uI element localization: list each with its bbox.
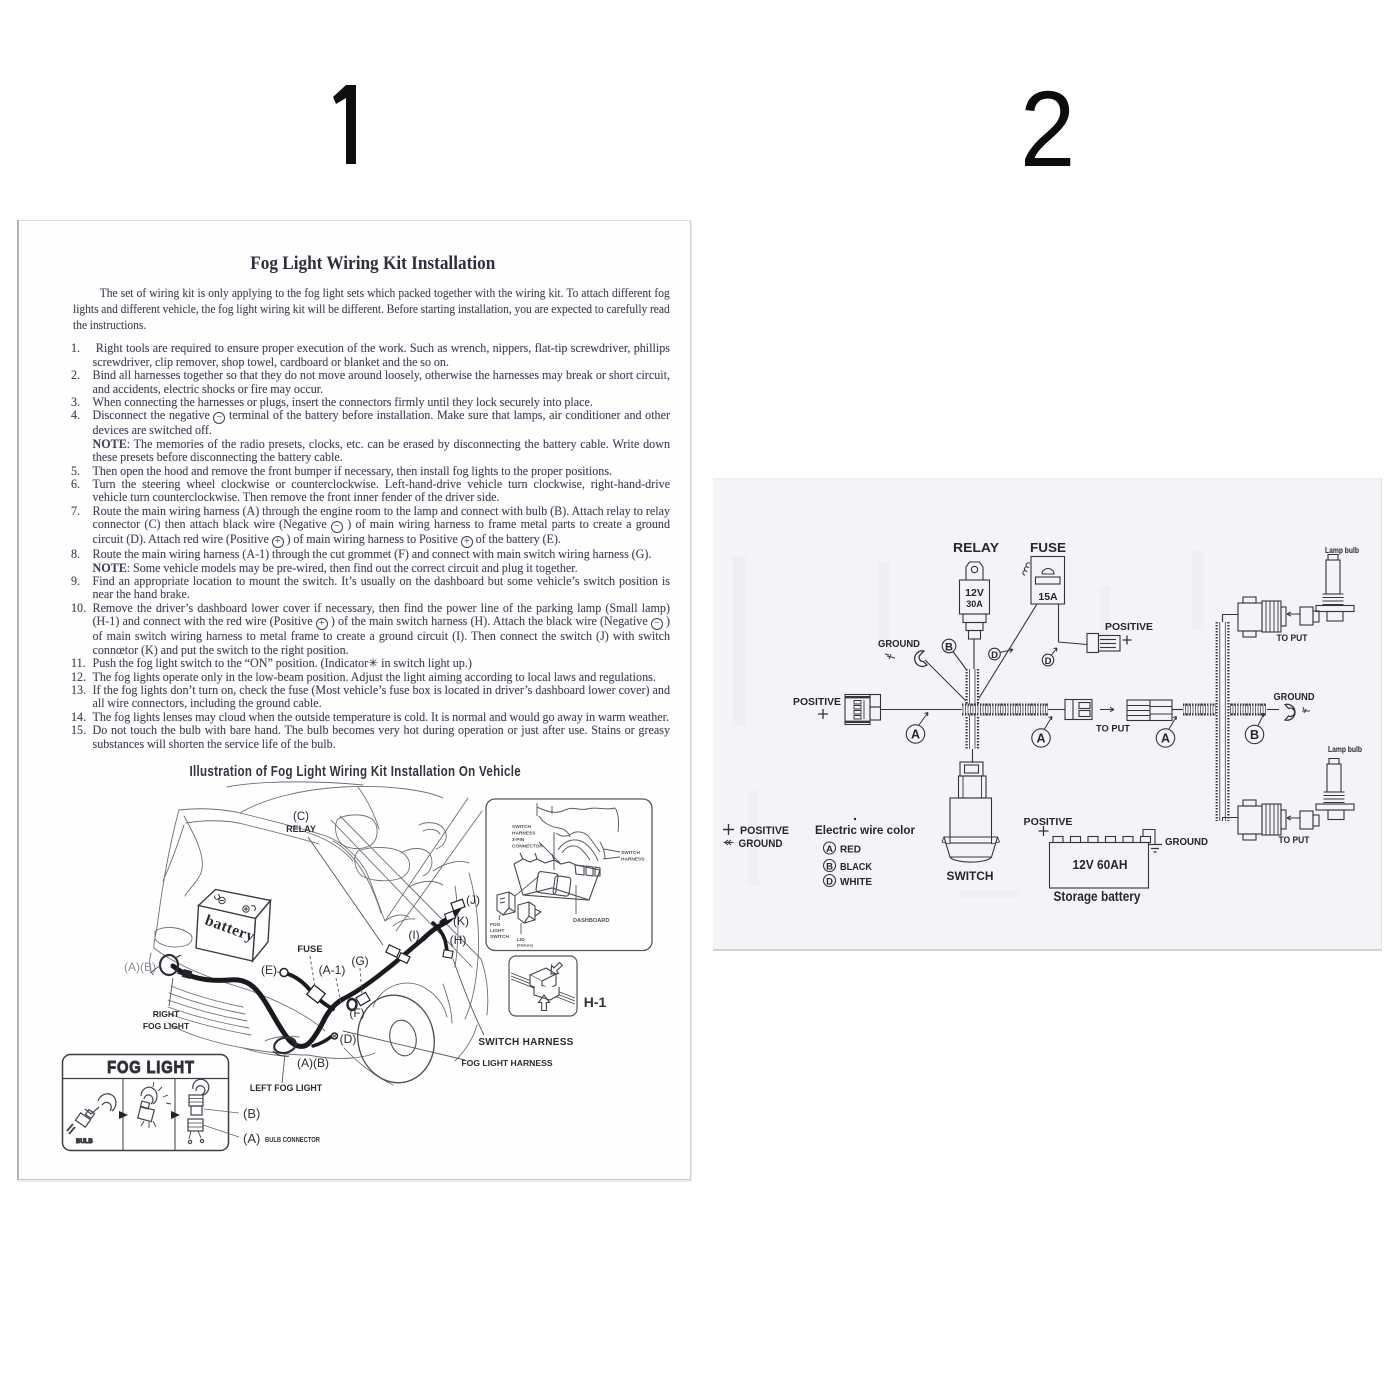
svg-text:POSITIVE: POSITIVE <box>1024 816 1073 828</box>
svg-text:SWITCH: SWITCH <box>512 824 531 830</box>
svg-text:B: B <box>945 642 953 654</box>
svg-text:(A-1): (A-1) <box>319 963 346 977</box>
svg-text:HARNESS: HARNESS <box>512 831 536 837</box>
svg-text:FOG LIGHT HARNESS: FOG LIGHT HARNESS <box>461 1058 552 1068</box>
svg-text:D: D <box>991 650 998 661</box>
svg-text:POSITIVE: POSITIVE <box>1105 621 1153 633</box>
svg-text:(J): (J) <box>466 893 480 907</box>
svg-text:SWITCH HARNESS: SWITCH HARNESS <box>478 1037 573 1048</box>
svg-text:(D): (D) <box>340 1032 357 1046</box>
svg-text:POSITIVE: POSITIVE <box>793 696 841 708</box>
svg-text:A: A <box>826 844 833 855</box>
svg-text:(Fixture): (Fixture) <box>517 943 534 948</box>
svg-text:FOG: FOG <box>490 922 501 928</box>
svg-text:RELAY: RELAY <box>286 824 316 834</box>
svg-text:(A): (A) <box>243 1131 260 1146</box>
svg-text:POSITIVE: POSITIVE <box>740 825 789 837</box>
svg-text:HARNESS: HARNESS <box>621 857 645 863</box>
svg-text:GROUND: GROUND <box>1274 691 1315 703</box>
svg-text:FOG LIGHT: FOG LIGHT <box>143 1021 190 1031</box>
svg-text:RELAY: RELAY <box>953 541 1000 555</box>
svg-text:(A)(B): (A)(B) <box>297 1056 329 1070</box>
svg-text:D: D <box>826 877 833 888</box>
svg-text:12V: 12V <box>965 587 984 599</box>
svg-text:BULB CONNECTOR: BULB CONNECTOR <box>265 1137 320 1144</box>
svg-text:SWITCH: SWITCH <box>621 850 640 856</box>
svg-text:BULB: BULB <box>76 1139 93 1145</box>
svg-text:(G): (G) <box>351 954 368 968</box>
svg-text:TO PUT: TO PUT <box>1277 633 1308 644</box>
svg-text:LEFT FOG LIGHT: LEFT FOG LIGHT <box>250 1083 323 1093</box>
svg-text:GROUND: GROUND <box>878 638 920 650</box>
svg-text:(E): (E) <box>261 963 277 977</box>
svg-text:3-PIN: 3-PIN <box>512 837 525 843</box>
svg-text:(H): (H) <box>450 933 467 947</box>
svg-text:LIGHT: LIGHT <box>490 928 504 934</box>
svg-text:SWITCH: SWITCH <box>490 934 509 940</box>
svg-text:D: D <box>1045 656 1052 667</box>
svg-text:WHITE: WHITE <box>840 877 872 888</box>
svg-text:(I): (I) <box>408 928 419 942</box>
svg-text:GROUND: GROUND <box>1165 836 1208 848</box>
svg-text:A: A <box>1036 732 1045 746</box>
svg-text:FUSE: FUSE <box>1030 541 1066 555</box>
svg-text:RED: RED <box>840 845 861 856</box>
svg-text:Electric wire color: Electric wire color <box>815 823 915 837</box>
svg-text:15A: 15A <box>1038 591 1058 603</box>
svg-text:FOG LIGHT: FOG LIGHT <box>107 1058 195 1078</box>
svg-text:A: A <box>1161 732 1170 746</box>
svg-text:Lamp bulb: Lamp bulb <box>1328 744 1362 754</box>
svg-text:CONNECTOR: CONNECTOR <box>512 844 543 850</box>
svg-text:BLACK: BLACK <box>840 862 873 873</box>
svg-text:B: B <box>826 862 833 873</box>
svg-text:12V 60AH: 12V 60AH <box>1073 858 1128 872</box>
svg-text:GROUND: GROUND <box>739 838 783 850</box>
svg-text:A: A <box>911 728 920 742</box>
svg-text:(B): (B) <box>243 1106 260 1121</box>
svg-text:(F): (F) <box>349 1006 364 1020</box>
svg-text:(K): (K) <box>453 914 469 928</box>
svg-text:Storage battery: Storage battery <box>1054 889 1141 904</box>
svg-text:FUSE: FUSE <box>297 944 322 955</box>
svg-text:RIGHT: RIGHT <box>153 1009 180 1019</box>
svg-text:TO PUT: TO PUT <box>1096 724 1130 735</box>
svg-text:TO PUT: TO PUT <box>1279 835 1310 846</box>
svg-text:30A: 30A <box>966 599 983 609</box>
svg-text:B: B <box>1250 728 1259 742</box>
svg-text:SWITCH: SWITCH <box>947 869 994 883</box>
svg-text:DASHBOARD: DASHBOARD <box>573 918 609 924</box>
svg-text:Lamp bulb: Lamp bulb <box>1325 545 1359 555</box>
svg-text:(C): (C) <box>293 811 309 823</box>
svg-text:H-1: H-1 <box>584 994 607 1010</box>
